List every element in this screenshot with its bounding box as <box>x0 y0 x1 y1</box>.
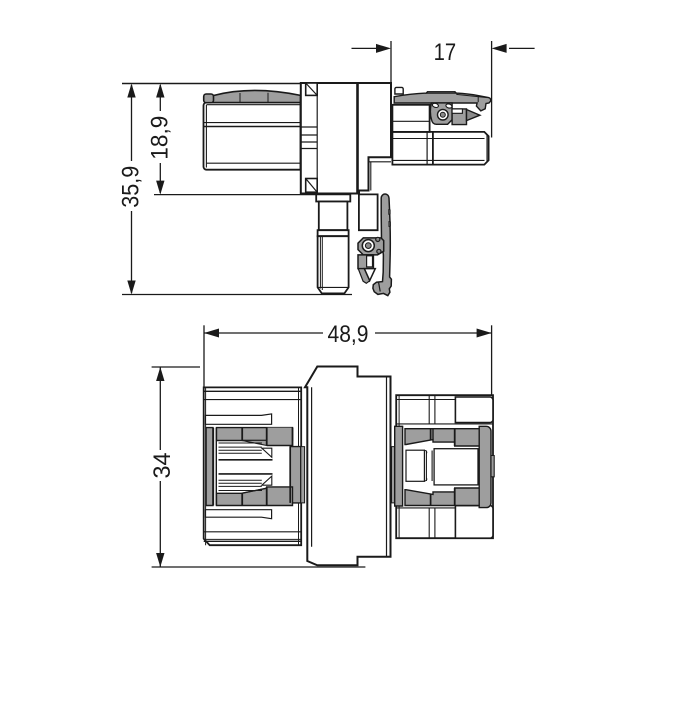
svg-text:35,9: 35,9 <box>118 166 145 208</box>
svg-text:17: 17 <box>434 39 457 66</box>
svg-text:18,9: 18,9 <box>147 116 174 160</box>
svg-text:48,9: 48,9 <box>328 321 369 348</box>
svg-text:34: 34 <box>149 453 176 479</box>
